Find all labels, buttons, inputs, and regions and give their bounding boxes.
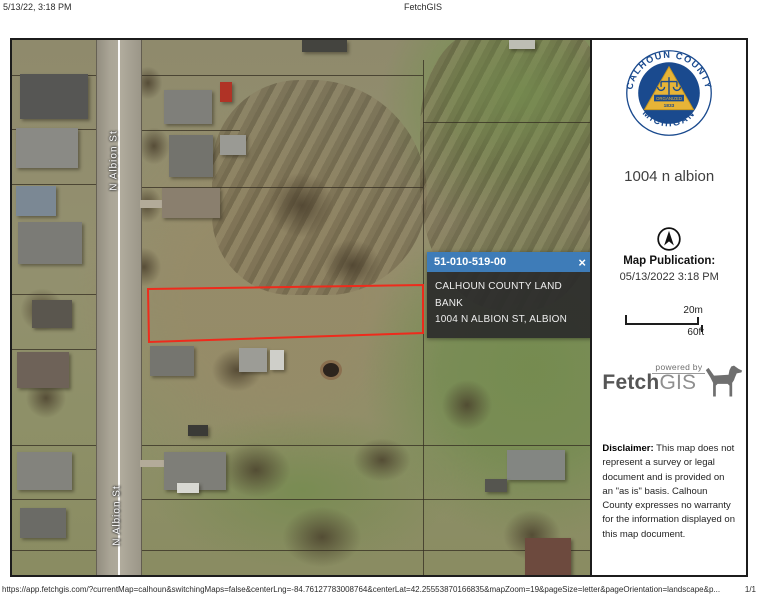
house: [162, 188, 220, 218]
disclaimer-text: Disclaimer: This map does not represent …: [602, 442, 736, 542]
shed: [270, 350, 284, 370]
house: [20, 74, 88, 119]
red-car: [220, 82, 232, 102]
garage: [220, 135, 246, 155]
page-indicator: 1/1: [745, 585, 756, 594]
house: [239, 348, 267, 372]
parcel-line: [140, 499, 592, 500]
scale-imperial-label: 60ft: [687, 327, 704, 338]
house: [20, 508, 66, 538]
svg-text:ORGANIZED: ORGANIZED: [656, 96, 682, 101]
popup-address: 1004 N ALBION ST, ALBION: [435, 312, 585, 329]
house: [302, 40, 347, 52]
tree: [267, 495, 377, 575]
parcel-line: [12, 349, 96, 350]
fetchgis-branding: powered by FetchGIS: [600, 360, 740, 406]
popup-header: 51-010-519-00 ×: [427, 252, 592, 272]
popup-parcel-id: 51-010-519-00: [434, 256, 506, 268]
scale-metric-label: 20m: [683, 305, 702, 316]
house: [150, 346, 194, 376]
pool: [320, 360, 342, 380]
dog-icon: [704, 362, 744, 402]
scale-bar: 20m 60ft: [625, 310, 737, 338]
parcel-line: [12, 445, 96, 446]
close-icon[interactable]: ×: [578, 257, 586, 268]
house: [17, 352, 69, 388]
house: [169, 135, 213, 177]
driveway: [140, 460, 164, 467]
street-label: N Albion St: [112, 485, 123, 545]
print-url: https://app.fetchgis.com/?currentMap=cal…: [2, 585, 720, 594]
parcel-line: [12, 550, 96, 551]
tree: [342, 430, 422, 490]
house: [507, 450, 565, 480]
house: [16, 186, 56, 216]
parcel-line: [12, 294, 96, 295]
tree: [432, 370, 502, 440]
north-arrow-icon: [656, 226, 682, 252]
house: [164, 90, 212, 124]
shed: [509, 40, 535, 49]
popup-owner: CALHOUN COUNTY LAND BANK: [435, 279, 585, 312]
fetchgis-wordmark: FetchGIS: [602, 371, 696, 395]
map-sidebar: CALHOUN COUNTY MICHIGAN ORGANIZED 1833 1…: [592, 40, 746, 575]
parcel-line: [423, 122, 592, 123]
popup-body: CALHOUN COUNTY LAND BANK 1004 N ALBION S…: [427, 272, 592, 338]
parcel-popup: 51-010-519-00 × CALHOUN COUNTY LAND BANK…: [427, 252, 592, 338]
map-title: 1004 n albion: [592, 168, 746, 185]
aerial-map[interactable]: N Albion St N Albion St: [12, 40, 592, 575]
street-label: N Albion St: [109, 130, 120, 190]
house: [16, 128, 78, 168]
print-datetime: 5/13/22, 3:18 PM: [3, 2, 72, 12]
dark-car: [188, 425, 208, 436]
parcel-highlight[interactable]: [142, 280, 432, 350]
grass-patch: [437, 40, 592, 170]
print-title: FetchGIS: [404, 2, 442, 12]
map-publication-date: 05/13/2022 3:18 PM: [592, 271, 746, 283]
map-layout-frame: N Albion St N Albion St: [10, 38, 748, 577]
house: [32, 300, 72, 328]
white-car: [177, 483, 199, 493]
parcel-line: [140, 130, 240, 131]
house: [17, 452, 72, 490]
parcel-line: [140, 75, 423, 76]
garage: [485, 479, 507, 492]
house: [18, 222, 82, 264]
scale-line: [625, 323, 699, 325]
print-preview-page: 5/13/22, 3:18 PM FetchGIS: [0, 0, 759, 600]
parcel-line: [140, 445, 592, 446]
parcel-line: [12, 499, 96, 500]
map-publication-label: Map Publication:: [592, 255, 746, 267]
svg-text:1833: 1833: [664, 103, 675, 109]
calhoun-county-seal: CALHOUN COUNTY MICHIGAN ORGANIZED 1833: [625, 49, 713, 137]
house: [525, 538, 571, 575]
scale-tick: [697, 317, 699, 325]
parcel-line: [12, 184, 96, 185]
